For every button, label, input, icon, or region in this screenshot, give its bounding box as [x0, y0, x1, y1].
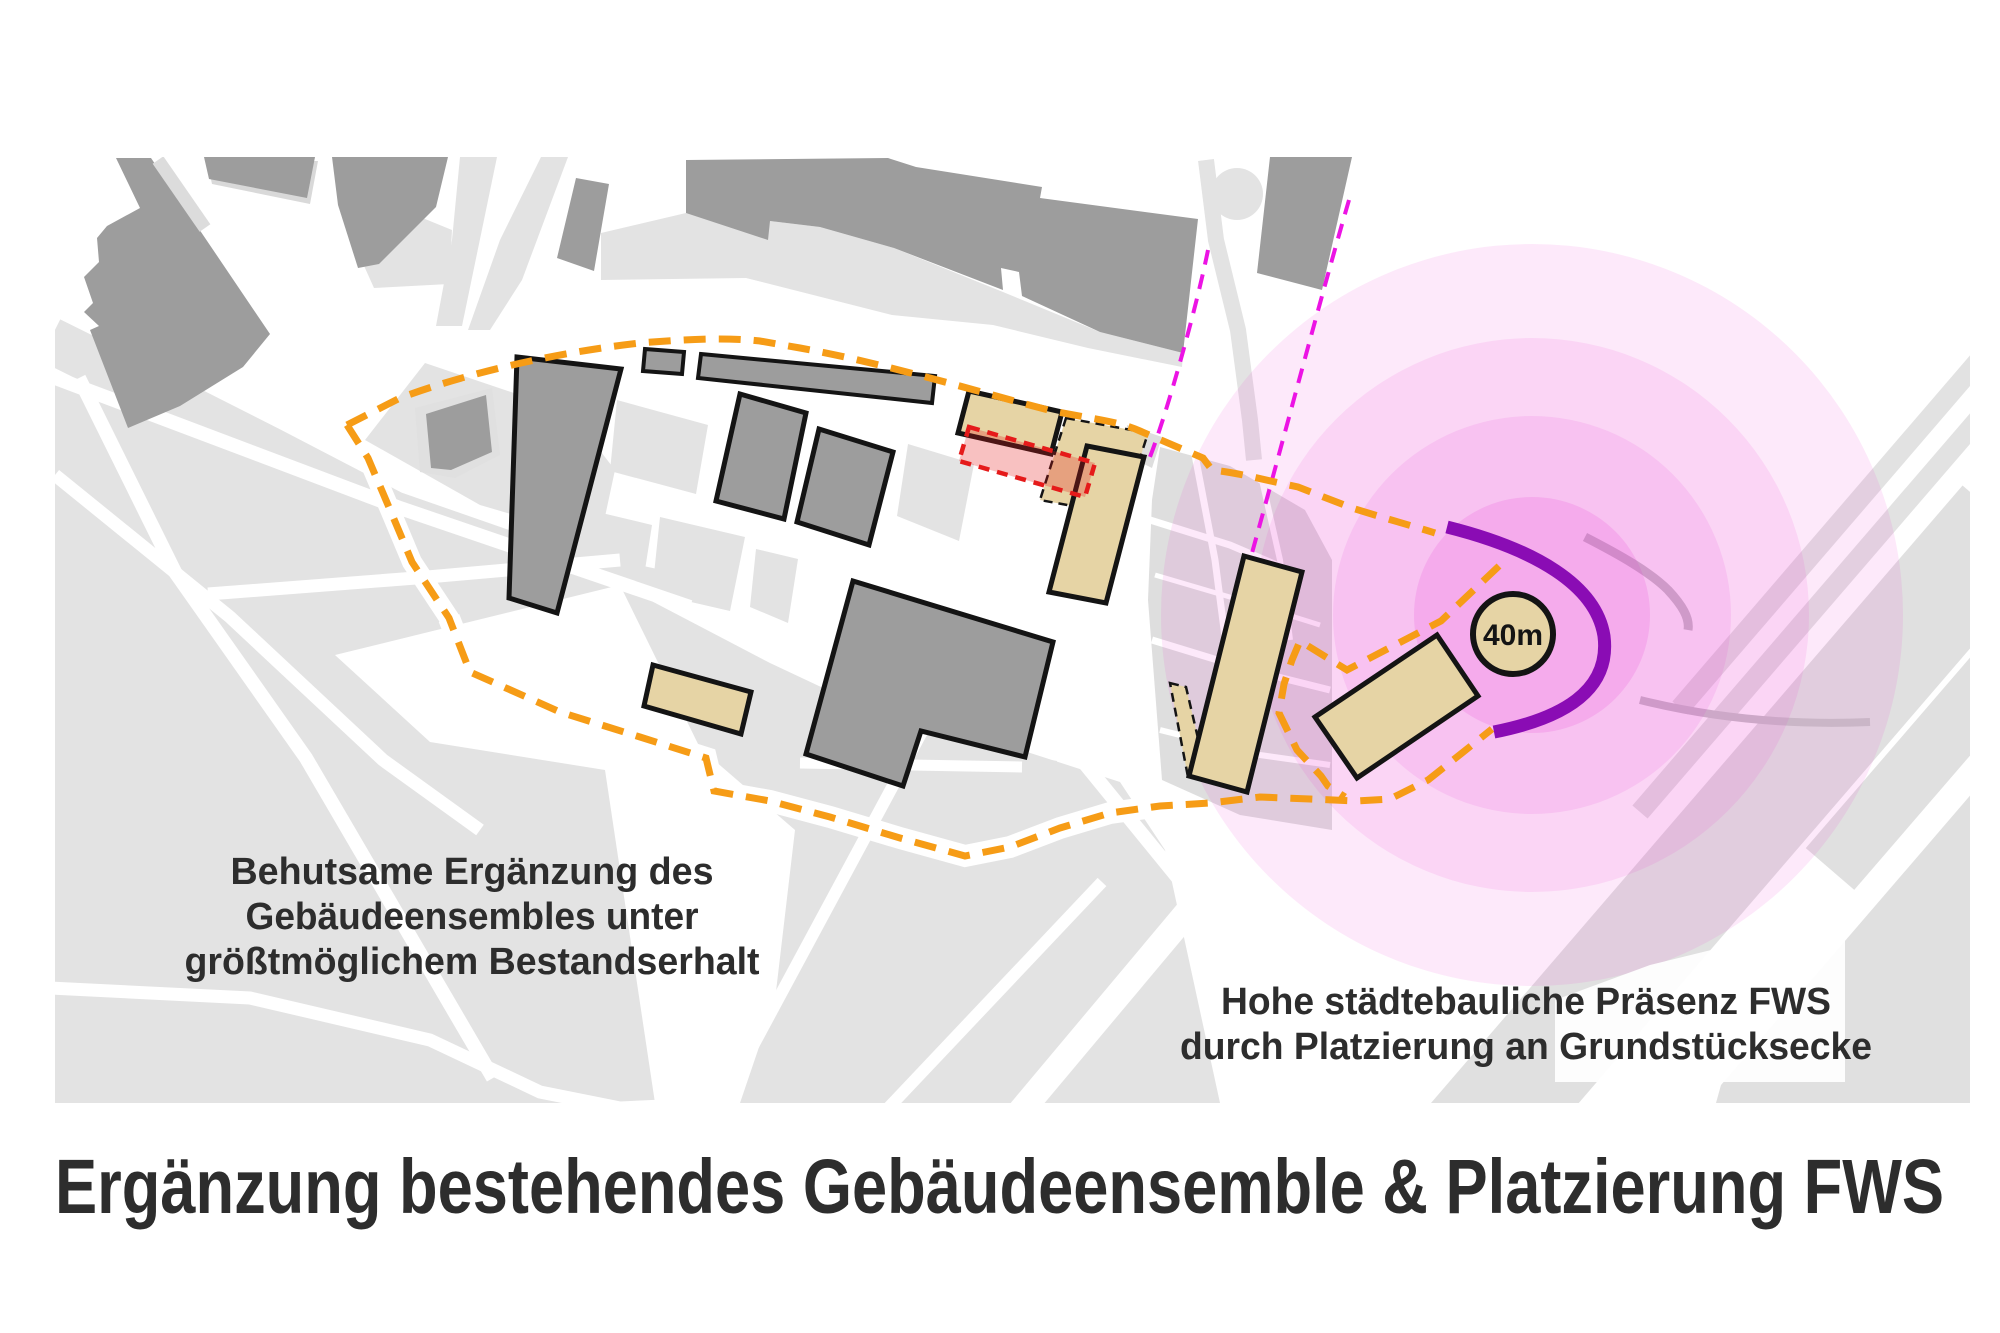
svg-text:40m: 40m — [1483, 619, 1543, 652]
svg-text:durch Platzierung an Grundstüc: durch Platzierung an Grundstücksecke — [1180, 1026, 1872, 1068]
svg-text:Gebäudeensembles unter: Gebäudeensembles unter — [246, 896, 699, 938]
svg-text:größtmöglichem Bestandserhalt: größtmöglichem Bestandserhalt — [185, 941, 760, 983]
svg-text:Hohe städtebauliche Präsenz FW: Hohe städtebauliche Präsenz FWS — [1221, 981, 1831, 1023]
svg-text:Ergänzung bestehendes Gebäudee: Ergänzung bestehendes Gebäudeensemble & … — [55, 1144, 1944, 1230]
svg-text:Behutsame Ergänzung des: Behutsame Ergänzung des — [231, 851, 714, 893]
